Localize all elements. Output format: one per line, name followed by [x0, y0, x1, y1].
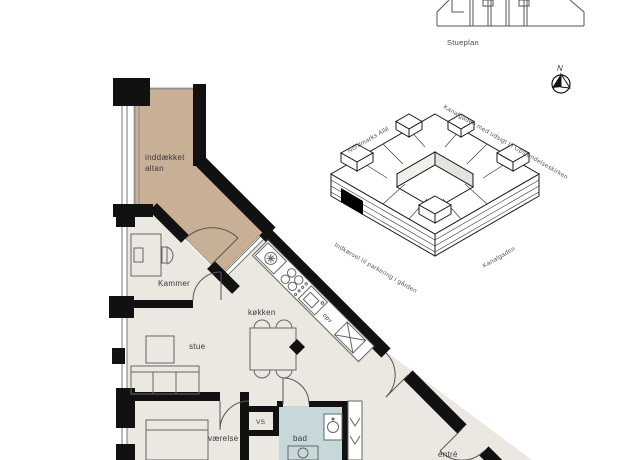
wall-bad-stub [277, 401, 283, 407]
wall-vaerelse [127, 392, 220, 401]
wall-balcony-right [193, 84, 206, 166]
label-vs: VS [256, 419, 266, 426]
wall-vs-bottom [249, 430, 278, 436]
label-bad: bad [293, 434, 307, 443]
north-arrow-icon: N [552, 64, 570, 93]
label-kammer: Kammer [158, 279, 190, 288]
floorplan-page: opv inddækket altan Kammer køkken stue v… [0, 0, 625, 460]
north-label: N [557, 64, 563, 73]
label-entre: entré [438, 450, 458, 459]
wall-pier-1 [116, 205, 135, 227]
street-kanalgaden: Kanalgaden [482, 245, 517, 269]
wall-bad-top [309, 401, 347, 407]
wall-kammer [127, 300, 193, 308]
label-stue: stue [189, 342, 206, 351]
bath-sink-icon [324, 414, 342, 440]
label-altan-line2: altan [145, 164, 164, 173]
stueplan-overview: Stueplan [437, 0, 584, 47]
site-model: Nordmarks Allé Kanalgaden med udsigt til… [331, 104, 569, 295]
wardrobe [348, 401, 362, 460]
label-altan-line1: inddækket [145, 153, 185, 162]
street-parking-entrance: Indkørsel til parkering i gården [333, 241, 419, 295]
wall-pier-topleft [113, 78, 150, 106]
label-vaerelse: værelse [208, 434, 239, 443]
wall-pier-5 [116, 444, 135, 460]
drawing: opv inddækket altan Kammer køkken stue v… [0, 0, 625, 460]
wall-bad-right [342, 401, 348, 460]
wall-pier-3 [112, 348, 125, 364]
stueplan-title: Stueplan [447, 38, 479, 47]
label-koekken: køkken [248, 308, 276, 317]
